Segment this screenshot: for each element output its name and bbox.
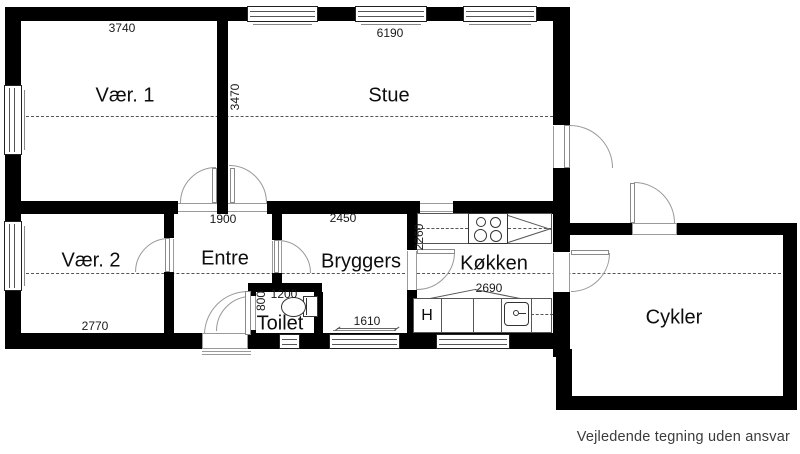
dashed-axis-upper [26, 116, 553, 117]
entrance-step [202, 351, 251, 352]
door-arc-koekken-shed [571, 253, 610, 292]
dim-koekken-height: 2260 [412, 224, 426, 251]
wall-shed-bottom [556, 396, 797, 410]
shed-door-threshold [632, 223, 677, 235]
door-leaf-entrance [245, 291, 251, 335]
dim-toilet-width: 1200 [271, 287, 298, 301]
toilet-cistern-line [306, 298, 307, 315]
wall-entre-bryggers-upper [272, 214, 282, 240]
window-sill [361, 24, 421, 25]
window-bryggers [329, 334, 400, 349]
stove-burner [490, 217, 501, 228]
wall-right-lower [553, 292, 570, 357]
room-label-entre: Entre [201, 248, 249, 271]
door-arc-shed [634, 182, 675, 223]
window-sill [24, 90, 25, 150]
stove-burner [474, 229, 487, 242]
door-threshold [178, 203, 217, 212]
wall-shed-left [556, 349, 572, 396]
window-stue-2 [355, 6, 427, 22]
wall-right-middle [553, 168, 570, 252]
door-leaf-shed [630, 183, 635, 223]
dim-stue-height: 3470 [228, 84, 242, 111]
window-sill [253, 24, 312, 25]
window-vaer2 [4, 221, 22, 291]
wall-vaer1-stue [217, 14, 228, 213]
door-leaf-stue-exterior [564, 125, 570, 168]
dim-koekken-width: 2690 [476, 281, 503, 295]
dim-stue-width: 6190 [377, 26, 404, 40]
room-label-vaer1: Vær. 1 [96, 85, 155, 108]
dim-line-1610 [337, 328, 397, 329]
door-threshold [407, 251, 417, 290]
dim-bryggers-width: 2450 [330, 211, 357, 225]
window-sill [469, 24, 531, 25]
counter-divider [501, 298, 502, 333]
counter-divider [441, 298, 442, 333]
dim-vaer2-width: 2770 [82, 319, 109, 333]
window-sill [333, 330, 396, 331]
window-stue-1 [247, 6, 318, 22]
door-leaf-bryggers [274, 240, 279, 273]
wall-bottom-left [5, 333, 202, 349]
dim-entre-width: 1900 [210, 212, 237, 226]
floor-plan: Vær. 1 Stue Vær. 2 Entre Bryggers Køkken… [0, 0, 800, 454]
door-arc-bryggers [278, 240, 311, 273]
counter-divider [531, 298, 532, 333]
wall-right-upper [553, 7, 570, 125]
window-vaer1 [4, 85, 22, 155]
window-sill [24, 226, 25, 286]
room-label-vaer2: Vær. 2 [62, 250, 121, 273]
door-arc-koekken [417, 252, 455, 290]
footer-disclaimer: Vejledende tegning uden ansvar [577, 429, 790, 445]
room-label-stue: Stue [368, 85, 409, 108]
door-arc-vaer1 [180, 167, 216, 203]
dashed-axis-lower [26, 273, 781, 274]
faucet-spout [519, 313, 526, 314]
door-arc-stue-exterior [570, 125, 613, 168]
wall-vaer2-entre-lower [164, 272, 174, 333]
window-toilet [279, 334, 300, 349]
wall-left [5, 7, 21, 349]
door-threshold [228, 203, 267, 212]
door-leaf-vaer2 [165, 238, 170, 272]
heater-label: H [421, 307, 433, 325]
dim-toilet-height: 800 [254, 291, 268, 311]
room-label-koekken: Køkken [460, 253, 528, 276]
stove-burner [476, 217, 486, 227]
door-arc-vaer2 [135, 238, 169, 272]
dim-vaer1-width: 3740 [109, 21, 136, 35]
door-leaf-stue [230, 168, 235, 203]
door-threshold [420, 203, 453, 212]
stove [468, 213, 508, 244]
door-leaf-koekken-shed [571, 250, 609, 255]
window-stue-3 [463, 6, 537, 22]
wall-mid-a [21, 201, 178, 214]
door-threshold [553, 253, 570, 292]
wall-vaer2-entre-upper [164, 214, 174, 238]
entrance-step [202, 354, 251, 355]
wall-shed-top-b [677, 223, 797, 235]
door-leaf-vaer1 [212, 168, 217, 203]
room-label-toilet: Toilet [257, 313, 304, 336]
room-label-bryggers: Bryggers [321, 251, 401, 274]
stove-burner [490, 230, 502, 242]
wall-shed-right [783, 223, 797, 410]
window-koekken [436, 334, 510, 349]
dim-bryggers-window: 1610 [354, 314, 381, 328]
entrance-threshold [202, 333, 248, 349]
room-label-cykler: Cykler [646, 307, 703, 330]
counter-divider [473, 298, 474, 333]
counter-dash [531, 314, 553, 315]
wall-shed-top-a [569, 223, 632, 235]
